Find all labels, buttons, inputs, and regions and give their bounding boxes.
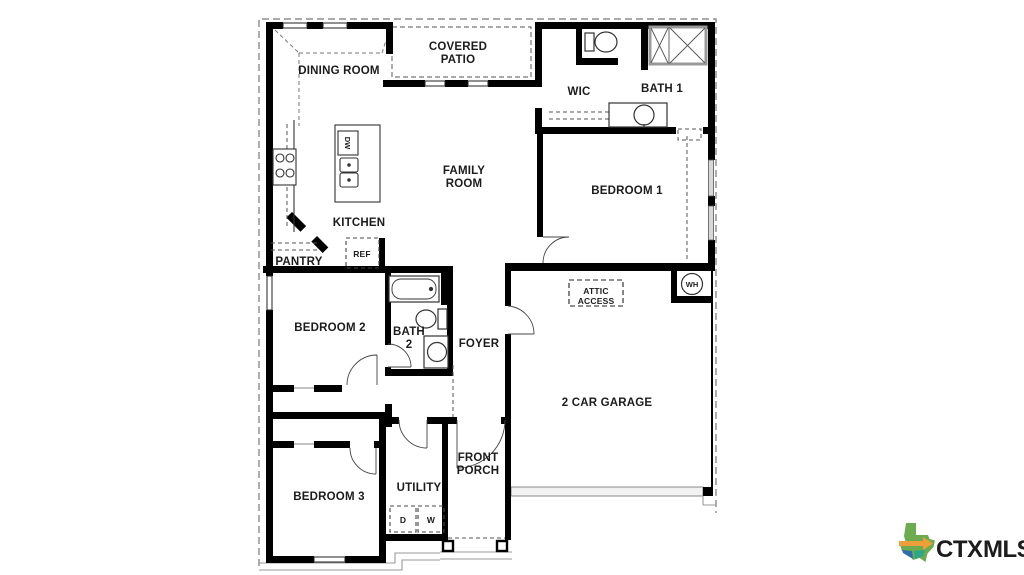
roof-overhang-outline bbox=[259, 19, 716, 566]
bath2-label-1: BATH bbox=[393, 326, 425, 338]
tray-ceiling-outline bbox=[275, 30, 389, 126]
foyer-label: FOYER bbox=[459, 338, 500, 350]
refrigerator-label: REF bbox=[353, 249, 371, 259]
texas-icon bbox=[899, 523, 935, 562]
utility-label: UTILITY bbox=[397, 482, 442, 494]
bath1-label: BATH 1 bbox=[641, 83, 683, 95]
wic-label: WIC bbox=[568, 86, 591, 98]
covered-patio-label-2: PATIO bbox=[441, 54, 475, 66]
toilet-icon bbox=[595, 32, 617, 52]
logo-ctx-text: CTX bbox=[936, 536, 983, 563]
covered-patio-label-1: COVERED bbox=[429, 41, 487, 53]
washer-label: W bbox=[427, 515, 436, 525]
toilet-tank-2 bbox=[438, 309, 447, 329]
floor-plan-page: WH DINING ROOM COVERED PATIO WIC BATH 1 … bbox=[0, 0, 1024, 575]
water-heater-label: WH bbox=[686, 280, 699, 289]
dryer-label: D bbox=[400, 515, 406, 525]
water-heater-icon: WH bbox=[682, 274, 703, 295]
pantry-shelves bbox=[271, 243, 320, 250]
dining-room-label: DINING ROOM bbox=[298, 65, 379, 77]
attic-access-label-2: ACCESS bbox=[578, 296, 615, 306]
family-room-label-1: FAMILY bbox=[443, 165, 485, 177]
sink-icon-2 bbox=[428, 343, 447, 362]
family-room-label-2: ROOM bbox=[446, 178, 483, 190]
laundry-boxes bbox=[390, 506, 444, 532]
floor-plan-drawing: WH DINING ROOM COVERED PATIO WIC BATH 1 … bbox=[0, 0, 1024, 575]
bedroom3-label: BEDROOM 3 bbox=[293, 491, 364, 503]
bath1-door-marker bbox=[678, 129, 701, 140]
pantry-label: PANTRY bbox=[275, 256, 322, 268]
attic-access-label-1: ATTIC bbox=[583, 286, 608, 296]
bath2-fixtures bbox=[389, 276, 448, 368]
bath2-label-2: 2 bbox=[406, 339, 413, 351]
porch-columns bbox=[443, 541, 507, 551]
garage-door bbox=[511, 487, 703, 496]
front-porch-label-2: PORCH bbox=[457, 465, 500, 477]
sink-icon bbox=[634, 105, 654, 125]
windows bbox=[267, 23, 488, 562]
dishwasher-label: DW bbox=[343, 137, 352, 150]
logo-mls-text: MLS bbox=[983, 536, 1024, 563]
kitchen-label: KITCHEN bbox=[333, 217, 386, 229]
bedroom1-label: BEDROOM 1 bbox=[591, 185, 663, 197]
toilet-tank bbox=[585, 33, 594, 51]
ctxmls-logo: CTX MLS bbox=[899, 523, 1024, 563]
shower-icon bbox=[650, 27, 706, 64]
bedroom2-label: BEDROOM 2 bbox=[294, 322, 365, 334]
garage-label: 2 CAR GARAGE bbox=[562, 397, 653, 409]
front-porch-label-1: FRONT bbox=[458, 452, 499, 464]
